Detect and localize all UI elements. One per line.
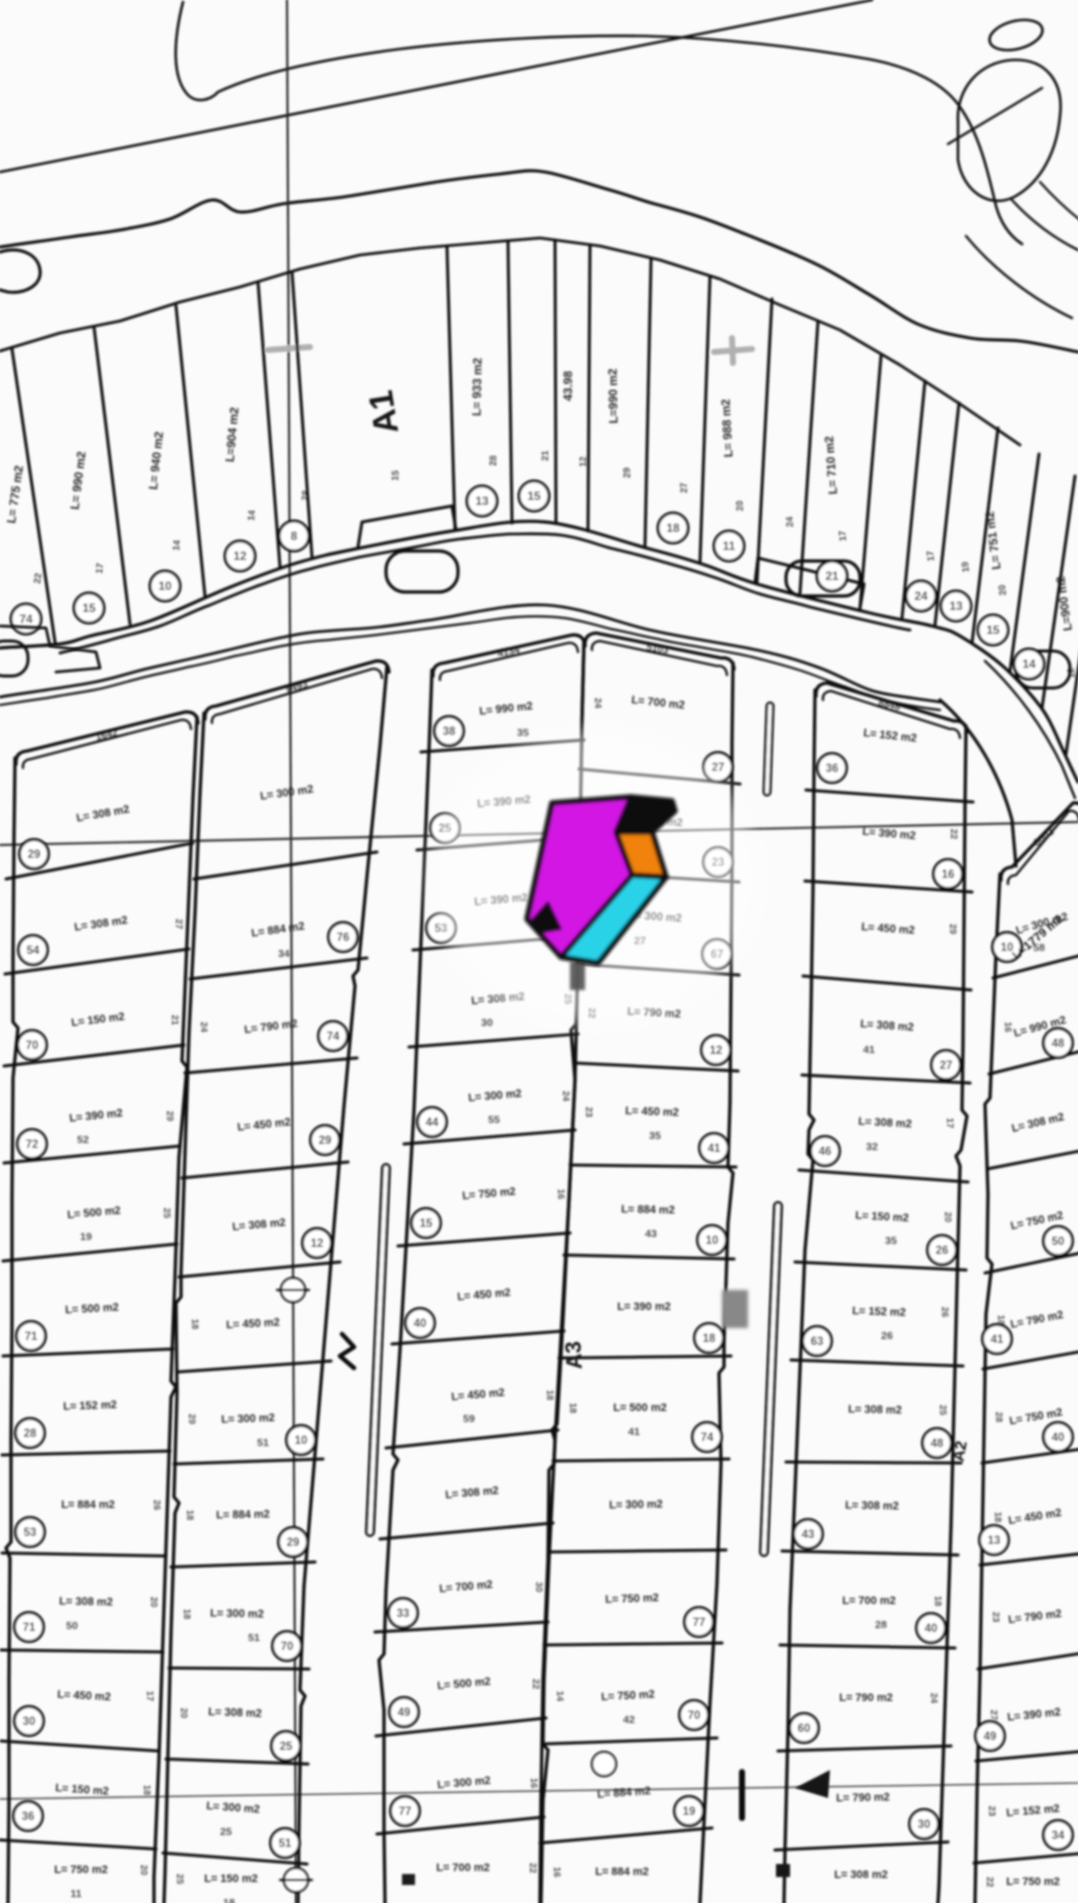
svg-text:23: 23 (990, 1612, 1001, 1623)
svg-text:49: 49 (984, 1731, 997, 1743)
svg-text:14: 14 (246, 509, 258, 521)
svg-text:43.98: 43.98 (561, 371, 575, 401)
svg-text:42: 42 (623, 1714, 635, 1726)
svg-text:24: 24 (784, 516, 796, 528)
svg-text:77: 77 (693, 1617, 706, 1629)
svg-text:12: 12 (710, 1045, 723, 1057)
svg-text:24: 24 (914, 589, 928, 603)
svg-text:28: 28 (300, 490, 312, 501)
svg-text:L=990 m2: L=990 m2 (606, 368, 621, 424)
svg-text:71: 71 (25, 1331, 38, 1343)
svg-text:11: 11 (723, 539, 736, 553)
svg-text:27: 27 (679, 482, 690, 493)
svg-text:8: 8 (291, 529, 298, 543)
svg-text:17: 17 (925, 550, 937, 561)
svg-text:19: 19 (683, 1806, 696, 1818)
svg-text:70: 70 (281, 1641, 294, 1653)
svg-text:13: 13 (988, 1535, 1001, 1547)
svg-text:28: 28 (875, 1619, 887, 1631)
svg-text:46: 46 (819, 1146, 832, 1158)
svg-text:11: 11 (70, 1888, 81, 1900)
svg-text:13: 13 (949, 599, 963, 613)
svg-text:L= 884 m2: L= 884 m2 (216, 1509, 270, 1522)
svg-text:36: 36 (826, 763, 839, 775)
svg-text:59: 59 (463, 1413, 475, 1425)
svg-text:72: 72 (26, 1139, 39, 1151)
svg-text:27: 27 (173, 919, 184, 930)
svg-text:L= 308 m2: L= 308 m2 (845, 1500, 899, 1513)
svg-text:20: 20 (942, 1212, 953, 1223)
svg-text:74: 74 (19, 612, 33, 626)
svg-text:15: 15 (420, 1218, 433, 1230)
svg-text:23: 23 (986, 1806, 997, 1817)
svg-text:15: 15 (986, 623, 1000, 637)
svg-text:22: 22 (32, 572, 44, 584)
svg-text:60: 60 (798, 1723, 811, 1735)
svg-text:17: 17 (944, 1118, 955, 1129)
svg-text:22: 22 (530, 1679, 541, 1690)
svg-text:51: 51 (279, 1838, 292, 1850)
svg-text:16: 16 (1002, 1022, 1013, 1033)
svg-text:63: 63 (811, 1336, 824, 1348)
svg-text:52: 52 (77, 1134, 89, 1146)
svg-text:44: 44 (426, 1117, 439, 1129)
svg-text:32: 32 (866, 1141, 878, 1153)
svg-text:18: 18 (544, 1390, 555, 1401)
svg-text:26: 26 (936, 1245, 949, 1257)
svg-text:18: 18 (703, 1333, 716, 1345)
svg-text:25: 25 (937, 1405, 948, 1416)
svg-text:L= 450 m2: L= 450 m2 (625, 1105, 679, 1119)
svg-text:20: 20 (138, 1865, 149, 1876)
svg-text:25: 25 (174, 1874, 185, 1885)
svg-text:76: 76 (337, 932, 350, 944)
svg-text:55: 55 (488, 1114, 500, 1126)
svg-text:L= 308 m2: L= 308 m2 (848, 1404, 902, 1417)
svg-text:28: 28 (993, 1412, 1004, 1423)
svg-text:L= 933 m2: L= 933 m2 (469, 357, 484, 416)
svg-text:A1: A1 (362, 388, 406, 437)
svg-text:16: 16 (551, 1867, 562, 1878)
svg-text:74: 74 (327, 1031, 340, 1043)
svg-text:A2: A2 (950, 1440, 970, 1463)
svg-text:L= 152 m2: L= 152 m2 (852, 1305, 906, 1319)
svg-text:38: 38 (443, 726, 456, 738)
svg-text:17: 17 (144, 1691, 155, 1702)
svg-text:18: 18 (992, 1512, 1003, 1523)
svg-text:70: 70 (688, 1710, 701, 1722)
svg-text:L= 884 m2: L= 884 m2 (621, 1204, 675, 1217)
svg-text:25: 25 (161, 1208, 172, 1219)
svg-text:34: 34 (278, 948, 290, 960)
svg-text:21: 21 (540, 450, 551, 461)
svg-text:19: 19 (960, 561, 972, 573)
svg-text:L= 308 m2: L= 308 m2 (208, 1706, 262, 1720)
svg-text:48: 48 (1052, 1038, 1065, 1050)
svg-text:12: 12 (311, 1238, 324, 1250)
svg-text:53: 53 (24, 1527, 37, 1539)
svg-text:10: 10 (158, 579, 172, 593)
svg-text:17: 17 (837, 530, 849, 541)
svg-text:26: 26 (151, 1500, 162, 1511)
svg-text:24: 24 (592, 698, 603, 709)
svg-text:21: 21 (825, 569, 839, 583)
svg-text:36: 36 (22, 1811, 35, 1823)
svg-text:18: 18 (567, 1403, 578, 1414)
svg-text:29: 29 (28, 849, 41, 861)
svg-text:17: 17 (94, 563, 106, 575)
svg-text:21: 21 (169, 1015, 180, 1026)
svg-text:22: 22 (527, 1863, 538, 1874)
svg-text:16: 16 (942, 869, 955, 881)
svg-text:10: 10 (706, 1235, 719, 1247)
svg-text:16: 16 (528, 1778, 539, 1789)
svg-text:40: 40 (925, 1623, 938, 1635)
svg-text:51: 51 (257, 1437, 269, 1449)
svg-text:L= 152 m2: L= 152 m2 (63, 1399, 117, 1413)
svg-text:L= 300 m2: L= 300 m2 (221, 1412, 275, 1426)
svg-text:L= 884 m2: L= 884 m2 (61, 1499, 115, 1511)
svg-text:14: 14 (171, 539, 183, 551)
svg-text:25: 25 (220, 1826, 232, 1838)
svg-text:18: 18 (189, 1319, 200, 1330)
svg-text:20: 20 (734, 500, 746, 511)
svg-text:23: 23 (583, 1107, 594, 1118)
svg-text:51: 51 (248, 1632, 260, 1644)
svg-text:18: 18 (184, 1510, 195, 1521)
svg-text:77: 77 (399, 1806, 412, 1818)
svg-text:22: 22 (948, 829, 959, 840)
svg-text:15: 15 (390, 469, 402, 481)
svg-text:L= 750 m2: L= 750 m2 (54, 1864, 108, 1876)
svg-text:35: 35 (517, 727, 529, 739)
svg-text:18: 18 (932, 1596, 943, 1607)
svg-text:30: 30 (23, 1716, 36, 1728)
svg-text:15: 15 (82, 601, 96, 615)
svg-text:A3: A3 (560, 1341, 586, 1370)
svg-text:30: 30 (918, 1819, 931, 1831)
svg-text:43: 43 (802, 1529, 815, 1541)
svg-text:12: 12 (1066, 667, 1078, 679)
svg-text:L= 500 m2: L= 500 m2 (613, 1402, 667, 1414)
svg-text:18: 18 (181, 1609, 192, 1620)
svg-text:L= 700 m2: L= 700 m2 (436, 1862, 490, 1874)
svg-text:L= 750 m2: L= 750 m2 (1006, 1876, 1060, 1888)
svg-text:L= 750 m2: L= 750 m2 (605, 1592, 659, 1606)
svg-text:41: 41 (991, 1334, 1004, 1346)
svg-text:18: 18 (141, 1785, 152, 1796)
svg-text:18: 18 (666, 521, 680, 535)
svg-text:35: 35 (885, 1235, 897, 1247)
svg-text:26: 26 (939, 1307, 950, 1318)
svg-text:29: 29 (287, 1537, 300, 1549)
svg-text:27: 27 (988, 1710, 999, 1721)
svg-text:24: 24 (928, 1693, 939, 1704)
svg-text:10: 10 (295, 1435, 308, 1447)
svg-text:20: 20 (148, 1597, 159, 1608)
svg-text:12: 12 (578, 456, 589, 467)
svg-text:20: 20 (178, 1708, 189, 1719)
svg-text:48: 48 (931, 1438, 944, 1450)
svg-text:33: 33 (397, 1608, 410, 1620)
svg-text:29: 29 (622, 467, 633, 478)
svg-text:29: 29 (186, 1414, 197, 1425)
svg-text:L= 300 m2: L= 300 m2 (210, 1608, 264, 1621)
svg-text:18: 18 (223, 1897, 235, 1903)
svg-text:70: 70 (26, 1040, 39, 1052)
svg-text:16: 16 (555, 1189, 566, 1200)
svg-text:L= 390 m2: L= 390 m2 (617, 1301, 671, 1313)
svg-text:24: 24 (560, 1091, 571, 1102)
svg-text:49: 49 (398, 1707, 411, 1719)
svg-text:34: 34 (1052, 1830, 1065, 1842)
svg-text:14: 14 (1022, 657, 1036, 671)
svg-text:29: 29 (164, 1111, 175, 1122)
svg-text:L= 308 m2: L= 308 m2 (834, 1869, 888, 1881)
svg-text:54: 54 (27, 945, 40, 957)
svg-text:22: 22 (984, 1877, 995, 1888)
svg-text:12: 12 (233, 549, 247, 563)
svg-text:L= 790 m2: L= 790 m2 (836, 1792, 890, 1805)
svg-text:L= 790 m2: L= 790 m2 (839, 1692, 893, 1704)
svg-text:26: 26 (881, 1330, 893, 1342)
svg-text:19: 19 (80, 1231, 92, 1243)
svg-text:20: 20 (997, 584, 1009, 596)
svg-text:29: 29 (947, 924, 958, 935)
svg-text:25: 25 (280, 1741, 293, 1753)
svg-text:43: 43 (645, 1228, 657, 1240)
svg-text:13: 13 (475, 494, 489, 508)
svg-text:L= 700 m2: L= 700 m2 (842, 1595, 896, 1607)
svg-text:L= 300 m2: L= 300 m2 (609, 1499, 663, 1512)
svg-text:14: 14 (554, 1691, 565, 1702)
svg-text:41: 41 (708, 1143, 721, 1155)
svg-text:41: 41 (628, 1426, 640, 1438)
svg-text:35: 35 (649, 1130, 661, 1142)
svg-text:L= 308 m2: L= 308 m2 (59, 1596, 113, 1609)
svg-text:40: 40 (414, 1318, 427, 1330)
svg-text:27: 27 (712, 762, 725, 774)
svg-text:15: 15 (527, 489, 541, 503)
svg-text:28: 28 (488, 455, 499, 466)
svg-text:24: 24 (198, 1022, 209, 1033)
svg-text:40: 40 (1052, 1432, 1065, 1444)
svg-text:71: 71 (23, 1622, 36, 1634)
svg-text:50: 50 (66, 1620, 78, 1632)
svg-text:28: 28 (24, 1428, 37, 1440)
svg-text:50: 50 (1052, 1236, 1065, 1248)
svg-text:27: 27 (940, 1060, 953, 1072)
svg-text:29: 29 (319, 1135, 332, 1147)
svg-text:74: 74 (701, 1432, 714, 1444)
svg-text:30: 30 (481, 1017, 493, 1029)
svg-text:L= 884 m2: L= 884 m2 (595, 1866, 649, 1878)
svg-text:30: 30 (533, 1582, 544, 1593)
svg-text:41: 41 (863, 1044, 875, 1056)
svg-text:L= 150 m2: L= 150 m2 (204, 1873, 258, 1885)
